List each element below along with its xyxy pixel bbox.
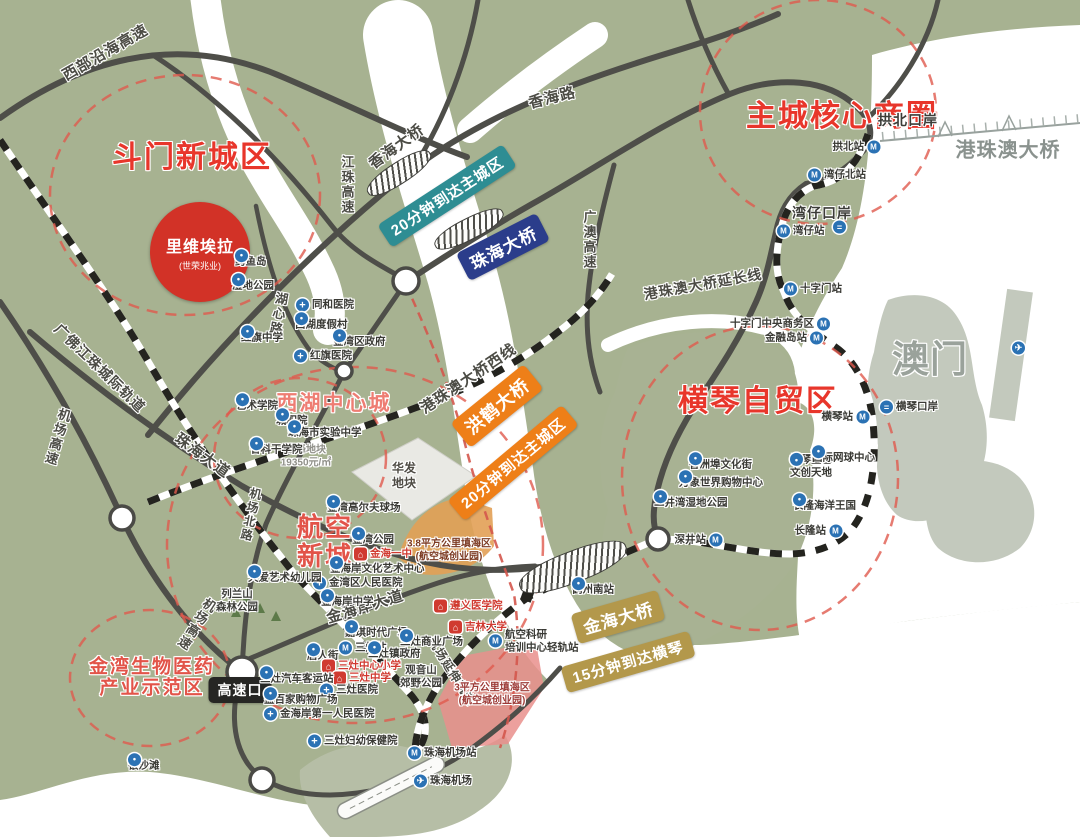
poi-label: 三灶中学: [349, 672, 391, 685]
poi-marker: 珠海机场: [414, 775, 472, 788]
poi-marker: 金海岸文化艺术中心: [330, 563, 425, 576]
metro-icon: [867, 141, 880, 154]
poi-label: 金海岸第一人民医院: [280, 708, 375, 721]
poi-label: 湾仔北站: [824, 169, 866, 182]
poi-icon: [276, 408, 289, 421]
poi-label: 珠海机场: [430, 775, 472, 788]
poi-marker: 湾仔站: [777, 225, 825, 238]
poi-marker: 三灶镇政府: [368, 648, 421, 661]
road-label: 澳门: [892, 329, 968, 383]
poi-icon: [679, 470, 692, 483]
poi-icon: [321, 589, 334, 602]
poi-label: 红旗医院: [310, 350, 352, 363]
school-icon: [449, 621, 462, 634]
poi-icon: [689, 452, 702, 465]
poi-label: 十字门站: [800, 283, 842, 296]
area-label: 列兰山森林公园: [216, 588, 258, 614]
plane-icon: [414, 775, 427, 788]
poi-marker: 鳄鱼岛: [235, 256, 267, 269]
poi-icon: [812, 445, 825, 458]
poi-marker: 三灶妇幼保健院: [308, 735, 398, 748]
poi-icon: [288, 420, 301, 433]
poi-marker: 金海岸第一人民医院: [264, 708, 375, 721]
poi-marker: 长隆站: [795, 525, 843, 538]
poi-marker: 十字门站: [784, 283, 842, 296]
customs-icon: [880, 401, 893, 414]
poi-marker: 长隆海洋王国: [793, 500, 856, 513]
poi-marker: 金融岛站: [765, 332, 823, 345]
hospital-icon: [296, 299, 309, 312]
poi-icon: [250, 437, 263, 450]
poi-label: 金融岛站: [765, 332, 807, 345]
area-label: 观音山郊野公园: [400, 664, 442, 690]
poi-label: 横琴站: [822, 411, 854, 424]
poi-marker: 鹤州南站: [572, 584, 614, 597]
customs-icon: [833, 221, 846, 234]
poi-icon: [235, 249, 248, 262]
poi-marker: 金湾区政府: [333, 336, 386, 349]
district-label: 横琴自贸区: [678, 385, 838, 419]
poi-label: 金湾区人民医院: [329, 577, 403, 590]
district-label: 金湾生物医药产业示范区: [89, 657, 215, 700]
poi-label: 航空科研培训中心轻轨站: [505, 628, 579, 653]
plane-icon: [1012, 342, 1025, 355]
poi-marker: 省科干学院: [250, 444, 303, 457]
poi-marker: 金湾高尔夫球场: [327, 502, 401, 515]
road-label: 港珠澳大桥: [956, 134, 1061, 163]
poi-label: 横琴口岸: [896, 401, 938, 414]
zhuhai-transit-map: 里维埃拉 (世荣兆业) 斗门新城区主城核心商圈横琴自贸区西湖中心城航空新城金湾生…: [0, 0, 1080, 837]
metro-icon: [339, 642, 352, 655]
school-icon: [354, 548, 367, 561]
poi-icon: [400, 629, 413, 642]
hospital-icon: [264, 708, 277, 721]
poi-marker: 金湾区人民医院: [313, 577, 403, 590]
poi-icon: [295, 312, 308, 325]
poi-icon: [793, 493, 806, 506]
riviera-subtitle: (世荣兆业): [179, 259, 221, 272]
poi-label: 金海岸文化艺术中心: [330, 563, 425, 576]
area-label: 华发地块: [392, 461, 416, 491]
poi-icon: [260, 666, 273, 679]
metro-icon: [777, 225, 790, 238]
poi-marker: 嘉琪时代广场: [345, 627, 408, 640]
poi-icon: [307, 643, 320, 656]
district-label: 斗门新城区: [112, 141, 272, 175]
metro-icon: [784, 283, 797, 296]
poi-label: 长隆站: [795, 525, 827, 538]
poi-marker: 益百家购物广场: [264, 694, 338, 707]
poi-label: 三灶妇幼保健院: [324, 735, 398, 748]
poi-icon: [352, 527, 365, 540]
poi-icon: [333, 329, 346, 342]
poi-icon: [330, 556, 343, 569]
metro-icon: [817, 318, 830, 331]
poi-marker: 金海一中: [354, 548, 412, 561]
metro-icon: [709, 534, 722, 547]
poi-marker: 二井湾湿地公园: [654, 497, 728, 510]
poi-marker: 红旗中学: [241, 332, 283, 345]
poi-marker: [1012, 342, 1025, 355]
poi-icon: [241, 325, 254, 338]
poi-label: 湾仔站: [793, 225, 825, 238]
poi-label: 深井站: [675, 534, 707, 547]
poi-marker: 香洲埠文化街: [689, 459, 752, 472]
poi-icon: [232, 273, 245, 286]
poi-marker: 金湾公园: [352, 534, 394, 547]
metro-icon: [829, 525, 842, 538]
poi-label: 珠海机场站: [424, 747, 477, 760]
poi-icon: [248, 565, 261, 578]
poi-marker: 艺术学院: [236, 400, 278, 413]
poi-marker: [833, 221, 846, 234]
poi-marker: 珠海机场站: [408, 747, 477, 760]
metro-icon: [489, 635, 502, 648]
school-icon: [434, 600, 447, 613]
poi-marker: 天爱艺术幼儿园: [248, 572, 322, 585]
poi-label: 三灶医院: [336, 684, 378, 697]
poi-icon: [264, 687, 277, 700]
poi-label: 金海一中: [370, 548, 412, 561]
metro-icon: [856, 411, 869, 424]
road-label: 拱北口岸: [878, 110, 938, 130]
poi-marker: 万象世界购物中心: [679, 477, 763, 490]
poi-marker: 同和医院: [296, 299, 354, 312]
poi-label: 遵义医学院: [450, 600, 503, 613]
poi-marker: 国际网球中心: [812, 452, 875, 465]
poi-icon: [128, 753, 141, 766]
metro-icon: [810, 332, 823, 345]
poi-marker: 湾仔北站: [808, 169, 866, 182]
road-label: 广澳高速: [580, 210, 599, 270]
road-label: 江珠高速: [338, 155, 357, 215]
poi-icon: [236, 393, 249, 406]
poi-marker: 湿地公园: [232, 280, 274, 293]
poi-marker: 遵义医学院: [434, 600, 503, 613]
poi-label: 三灶中心小学: [338, 660, 401, 673]
poi-marker: 三灶商业广场: [400, 636, 463, 649]
poi-marker: 拱北站: [833, 141, 881, 154]
area-label: 3.8平方公里填海区(航空城创业园): [407, 539, 491, 564]
poi-icon: [572, 577, 585, 590]
poi-marker: 深井站: [675, 534, 723, 547]
poi-icon: [345, 620, 358, 633]
poi-icon: [790, 453, 803, 466]
poi-marker: 银沙滩: [128, 760, 160, 773]
poi-label: 十字门中央商务区: [730, 318, 814, 331]
poi-icon: [327, 495, 340, 508]
poi-marker: 横琴站: [822, 411, 870, 424]
hospital-icon: [308, 735, 321, 748]
poi-marker: 横琴口岸: [880, 401, 938, 414]
poi-icon: [368, 641, 381, 654]
poi-marker: 十字门中央商务区: [730, 318, 830, 331]
poi-label: 拱北站: [833, 141, 865, 154]
hospital-icon: [294, 350, 307, 363]
area-label: 3平方公里填海区(航空城创业园): [454, 683, 530, 708]
poi-marker: 金海岸中学: [321, 596, 374, 609]
poi-marker: 珠海市实验中学: [288, 427, 362, 440]
poi-icon: [654, 490, 667, 503]
metro-icon: [408, 747, 421, 760]
riviera-title: 里维埃拉: [166, 233, 234, 257]
poi-label: 同和医院: [312, 299, 354, 312]
poi-marker: 航空科研培训中心轻轨站: [489, 628, 579, 653]
poi-marker: 红旗医院: [294, 350, 352, 363]
district-label: 西湖中心城: [277, 392, 392, 416]
metro-icon: [808, 169, 821, 182]
